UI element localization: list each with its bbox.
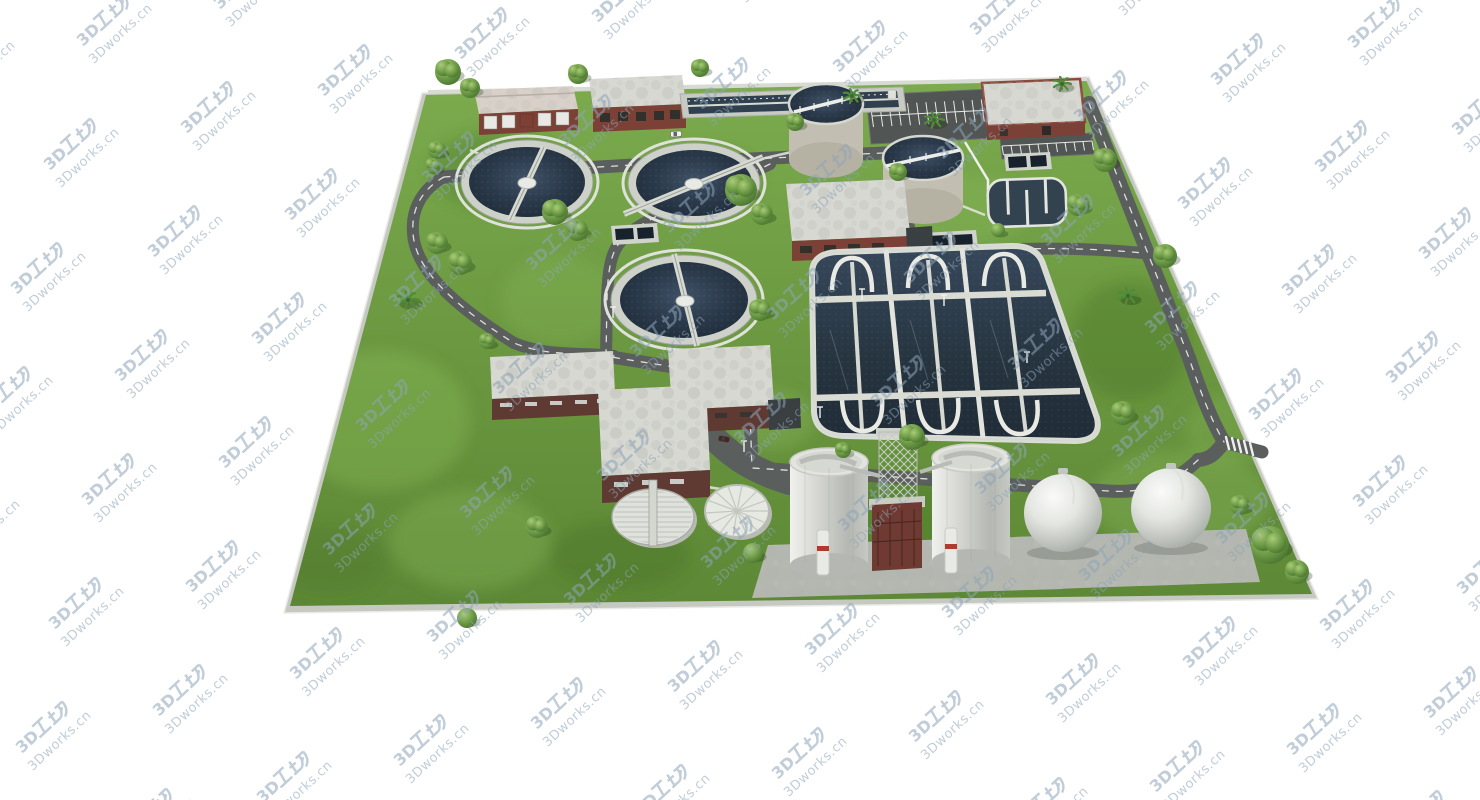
tree-plant [691, 59, 712, 77]
tree-plant [460, 78, 484, 98]
garage-building [474, 86, 578, 135]
clarifier-1 [456, 136, 598, 228]
chlorine-contact-tank [987, 178, 1067, 228]
tree-plant [1285, 560, 1313, 584]
product-render-stage: 3D 3Dworks.cn 3D 3Dworks.cn 3D [0, 0, 1480, 800]
tree-plant [435, 59, 465, 85]
admin-building [589, 75, 686, 132]
treatment-plant-3d-render [0, 0, 1480, 800]
tree-plant [568, 64, 592, 84]
workshop-building-1 [490, 351, 615, 420]
clarifier-3 [605, 250, 763, 350]
tree-plant [1153, 244, 1181, 268]
car [670, 131, 681, 137]
